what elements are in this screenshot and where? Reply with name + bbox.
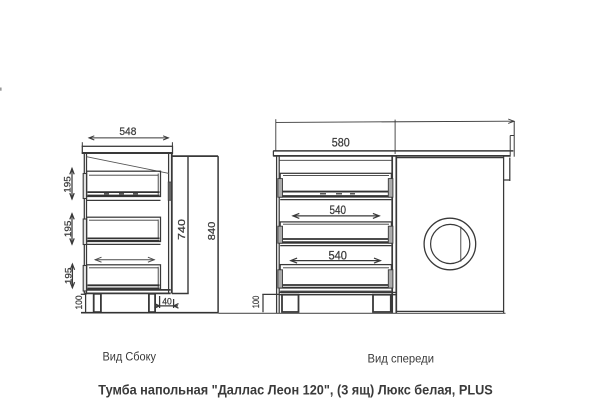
svg-text:40: 40 [162, 296, 172, 306]
svg-text:540: 540 [328, 250, 347, 262]
svg-text:548: 548 [119, 126, 136, 138]
svg-text:740: 740 [176, 219, 188, 240]
svg-text:195: 195 [64, 268, 75, 285]
svg-text:Тумба напольная "Даллас Леон 1: Тумба напольная "Даллас Леон 120", (3 ящ… [98, 381, 493, 397]
svg-text:195: 195 [63, 221, 74, 238]
svg-text:540: 540 [329, 205, 346, 217]
svg-text:195: 195 [63, 176, 74, 193]
svg-text:Вид спереди: Вид спереди [368, 354, 435, 366]
svg-text:Вид Сбоку: Вид Сбоку [103, 351, 157, 363]
svg-text:100: 100 [74, 296, 85, 310]
svg-text:100: 100 [251, 296, 262, 309]
svg-text:840: 840 [206, 222, 218, 241]
svg-text:580: 580 [332, 138, 350, 150]
